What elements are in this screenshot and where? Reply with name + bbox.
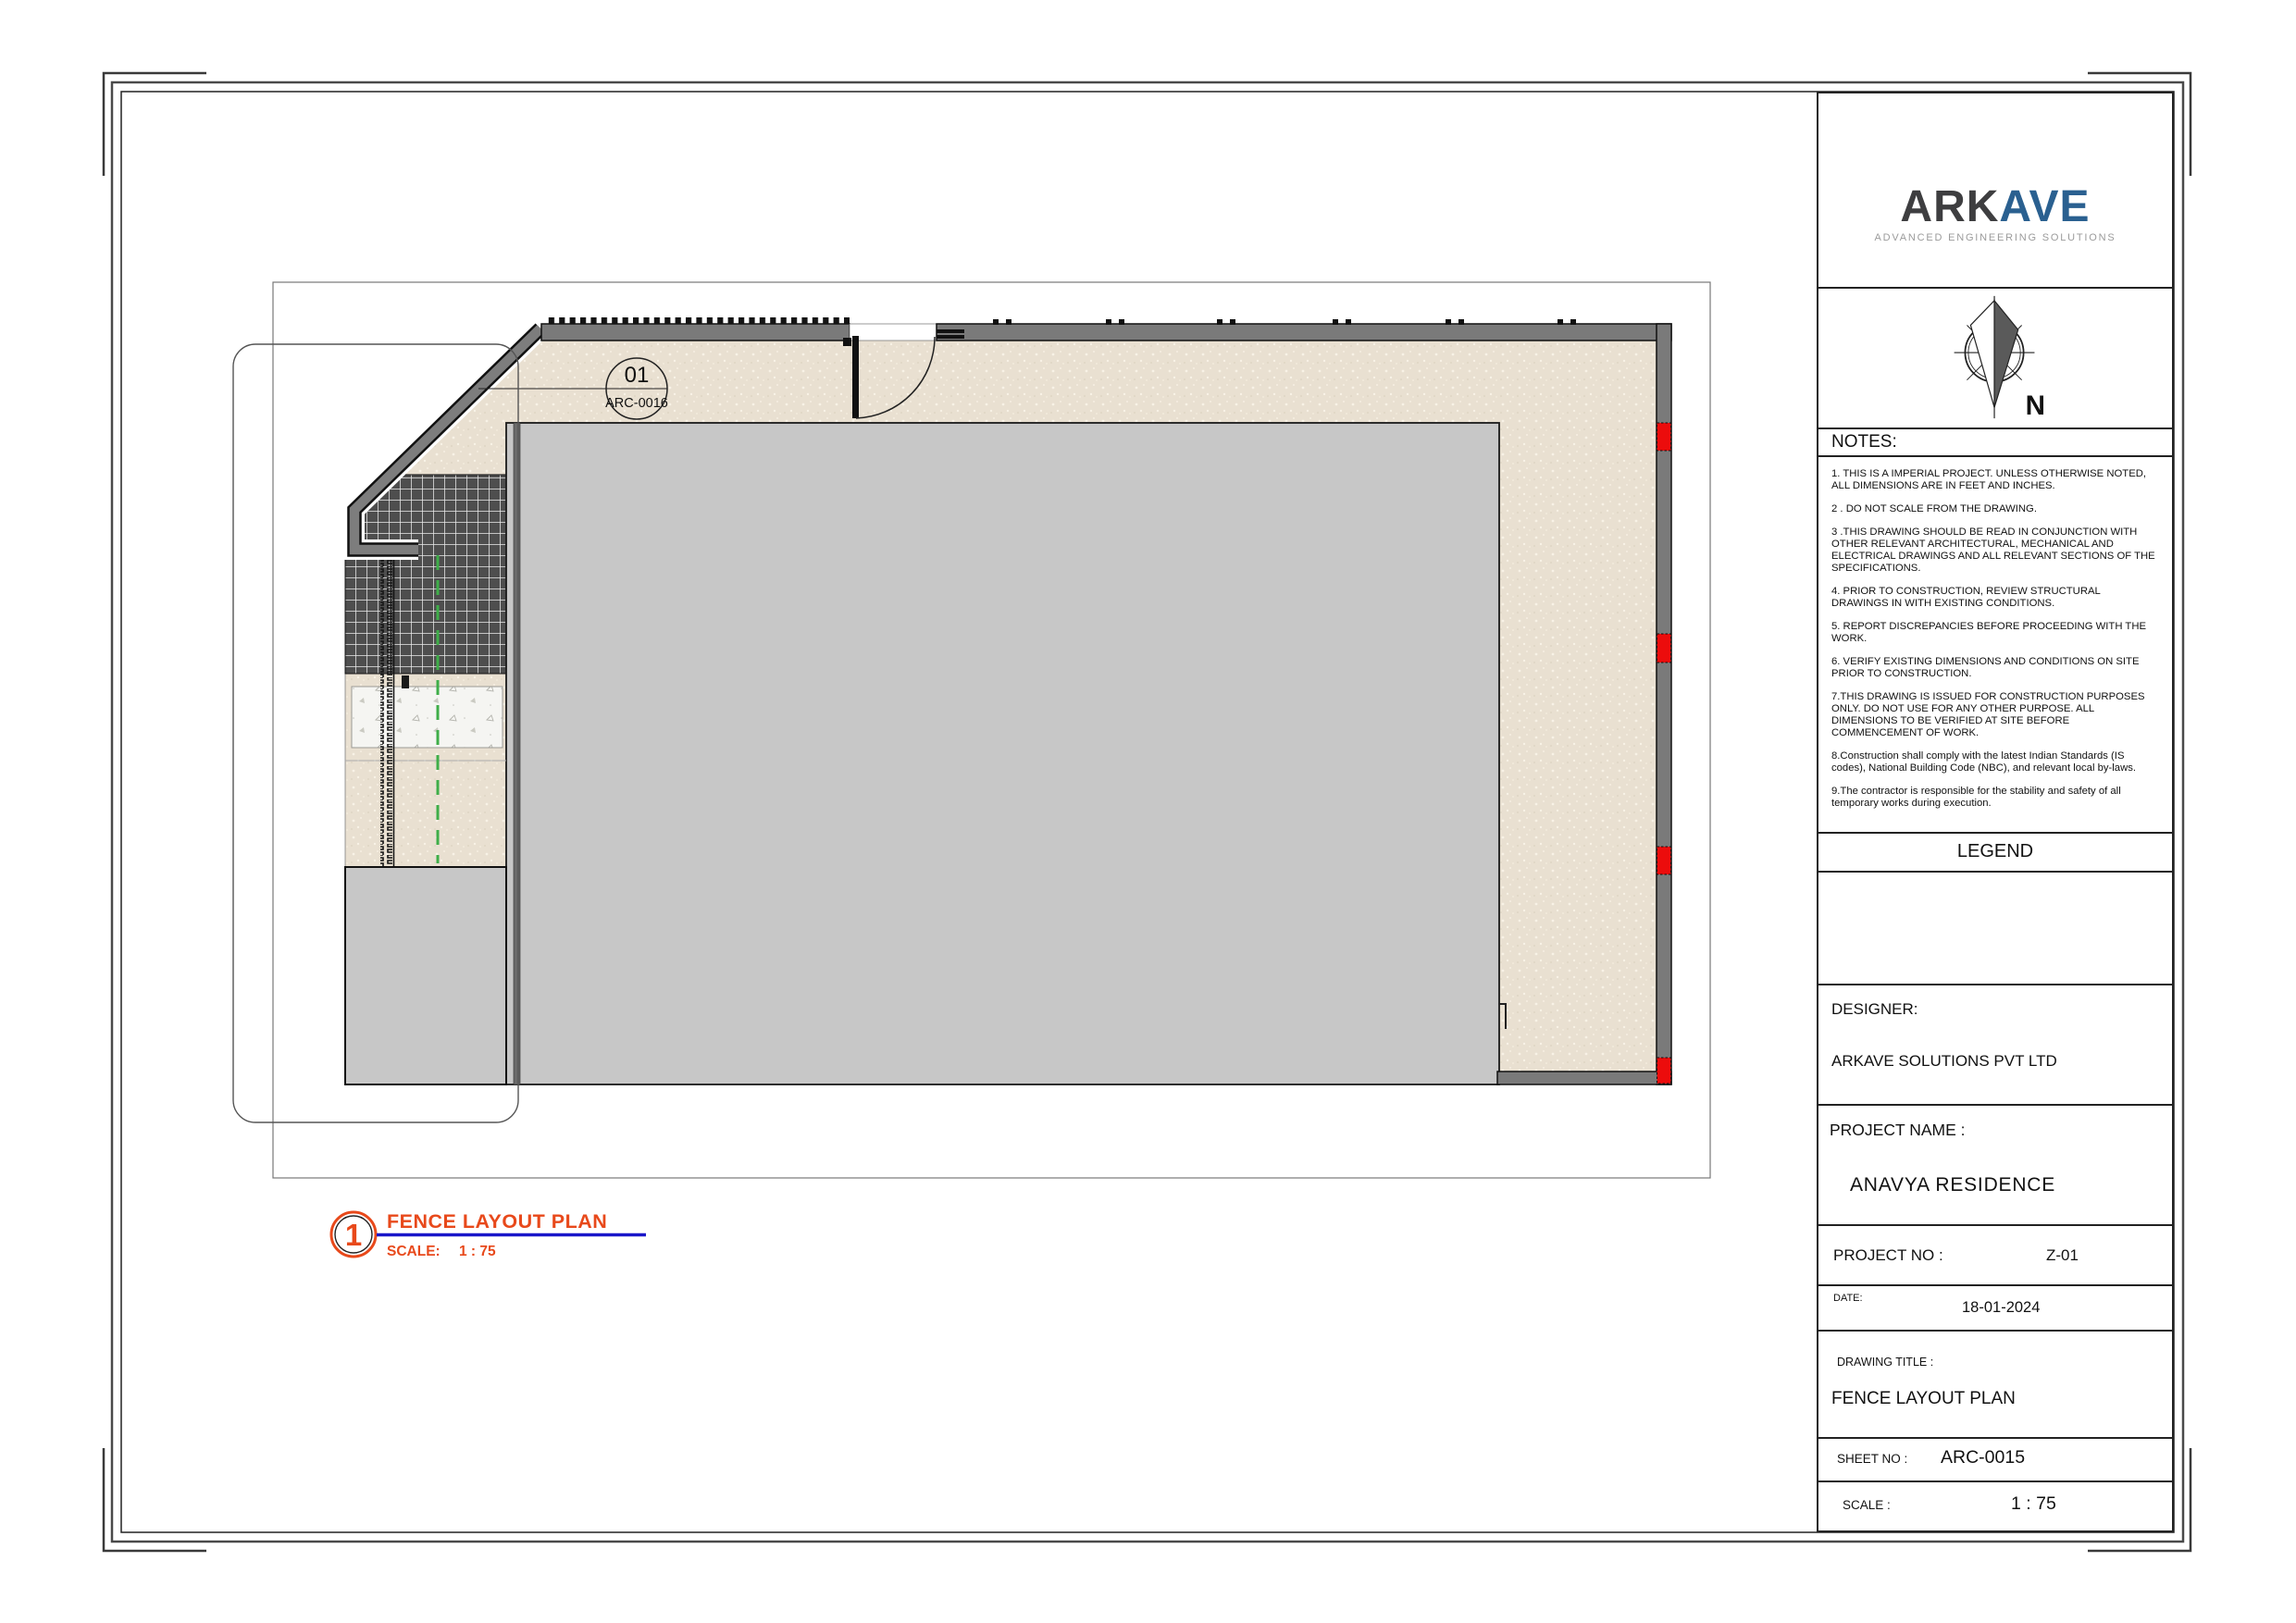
designer-section: DESIGNER: ARKAVE SOLUTIONS PVT LTD [1818, 985, 2172, 1106]
note-item-1: 1. THIS IS A IMPERIAL PROJECT. UNLESS OT… [1831, 468, 2159, 492]
sliding-gate-zigzag-symbol [380, 560, 392, 867]
concrete-pad [352, 687, 503, 748]
gate-post-marker [402, 675, 409, 688]
date-label: DATE: [1833, 1293, 1863, 1304]
drawing-sheet: 01 ARC-0016 1 FENCE LAYOUT PLAN SCALE: 1… [0, 0, 2296, 1623]
company-logo: ARKAVE [1818, 184, 2172, 230]
notes-list: 1. THIS IS A IMPERIAL PROJECT. UNLESS OT… [1818, 457, 2172, 810]
north-arrow-section: N [1818, 289, 2172, 429]
callout-number: 01 [625, 363, 650, 388]
notes-body-section: 1. THIS IS A IMPERIAL PROJECT. UNLESS OT… [1818, 457, 2172, 834]
view-scale-label: SCALE: [387, 1244, 441, 1259]
view-number: 1 [345, 1218, 362, 1252]
driveway-area [345, 867, 506, 1084]
scale-label: SCALE : [1843, 1498, 1891, 1512]
gate-jamb-bar-2 [937, 335, 964, 339]
project-name-value: ANAVYA RESIDENCE [1850, 1174, 2055, 1196]
note-item-8: 8.Construction shall comply with the lat… [1831, 750, 2159, 774]
logo-section: ARKAVE ADVANCED ENGINEERING SOLUTIONS [1818, 93, 2172, 289]
project-no-label: PROJECT NO : [1833, 1246, 1943, 1265]
note-item-3: 3 .THIS DRAWING SHOULD BE READ IN CONJUN… [1831, 527, 2159, 574]
view-scale-value: 1 : 75 [459, 1244, 496, 1259]
scale-section: SCALE : 1 : 75 [1818, 1482, 2172, 1534]
building-left-edge-wall [514, 423, 520, 1084]
note-item-4: 4. PRIOR TO CONSTRUCTION, REVIEW STRUCTU… [1831, 586, 2159, 610]
drawing-title-value: FENCE LAYOUT PLAN [1831, 1389, 2016, 1409]
frame-corner-mark-top-left [104, 73, 206, 176]
building-mass [345, 423, 1506, 1084]
designer-label: DESIGNER: [1831, 1000, 1918, 1019]
note-item-9: 9.The contractor is responsible for the … [1831, 786, 2159, 810]
red-post-marker-4 [1657, 1058, 1671, 1084]
note-item-6: 6. VERIFY EXISTING DIMENSIONS AND CONDIT… [1831, 656, 2159, 680]
red-post-marker-2 [1657, 634, 1671, 663]
logo-text-prefix: ARK [1900, 182, 1999, 231]
callout-sheet-ref: ARC-0016 [605, 396, 668, 411]
red-post-marker-3 [1657, 847, 1671, 874]
gate-hinge-mark [843, 338, 851, 346]
notes-header: NOTES: [1818, 429, 2172, 452]
note-item-2: 2 . DO NOT SCALE FROM THE DRAWING. [1831, 503, 2159, 515]
frame-corner-mark-bottom-left [104, 1448, 206, 1551]
date-value: 18-01-2024 [1962, 1299, 2040, 1317]
project-name-label: PROJECT NAME : [1830, 1121, 1966, 1140]
designer-value: ARKAVE SOLUTIONS PVT LTD [1831, 1052, 2057, 1071]
gate-opening [850, 324, 937, 341]
logo-tagline: ADVANCED ENGINEERING SOLUTIONS [1818, 232, 2172, 243]
title-block: ARKAVE ADVANCED ENGINEERING SOLUTIONS N … [1817, 92, 2174, 1532]
note-item-7: 7.THIS DRAWING IS ISSUED FOR CONSTRUCTIO… [1831, 691, 2159, 738]
drawing-title-label: DRAWING TITLE : [1837, 1356, 1933, 1369]
north-label: N [2026, 390, 2045, 421]
drawing-title-section: DRAWING TITLE : FENCE LAYOUT PLAN [1818, 1332, 2172, 1439]
gate-leaf [852, 336, 859, 418]
ground-right-band [1499, 423, 1657, 1072]
red-post-marker-1 [1657, 423, 1671, 451]
project-no-value: Z-01 [2046, 1246, 2079, 1265]
fence-wall-north-left [541, 324, 850, 341]
legend-header-section: LEGEND [1818, 834, 2172, 873]
sheet-no-label: SHEET NO : [1837, 1452, 1907, 1466]
sheet-no-value: ARC-0015 [1941, 1447, 2025, 1468]
project-name-section: PROJECT NAME : ANAVYA RESIDENCE [1818, 1106, 2172, 1226]
view-title: 1 FENCE LAYOUT PLAN SCALE: 1 : 75 [331, 1210, 646, 1259]
sheet-no-section: SHEET NO : ARC-0015 [1818, 1439, 2172, 1482]
project-no-section: PROJECT NO : Z-01 [1818, 1226, 2172, 1286]
building-footprint [506, 423, 1499, 1084]
scale-value: 1 : 75 [2011, 1493, 2056, 1515]
legend-header: LEGEND [1818, 834, 2172, 862]
logo-text-suffix: AVE [1999, 182, 2090, 231]
view-title-text: FENCE LAYOUT PLAN [387, 1210, 607, 1233]
gate-jamb-bar-1 [937, 329, 964, 333]
note-item-5: 5. REPORT DISCREPANCIES BEFORE PROCEEDIN… [1831, 621, 2159, 645]
date-section: DATE: 18-01-2024 [1818, 1286, 2172, 1332]
notes-header-section: NOTES: [1818, 429, 2172, 457]
legend-body-section [1818, 873, 2172, 985]
fence-wall-south [1497, 1072, 1671, 1084]
north-arrow-icon: N [1818, 289, 2176, 427]
fence-wall-north-right [937, 324, 1671, 341]
fence-crenellation [544, 317, 850, 324]
